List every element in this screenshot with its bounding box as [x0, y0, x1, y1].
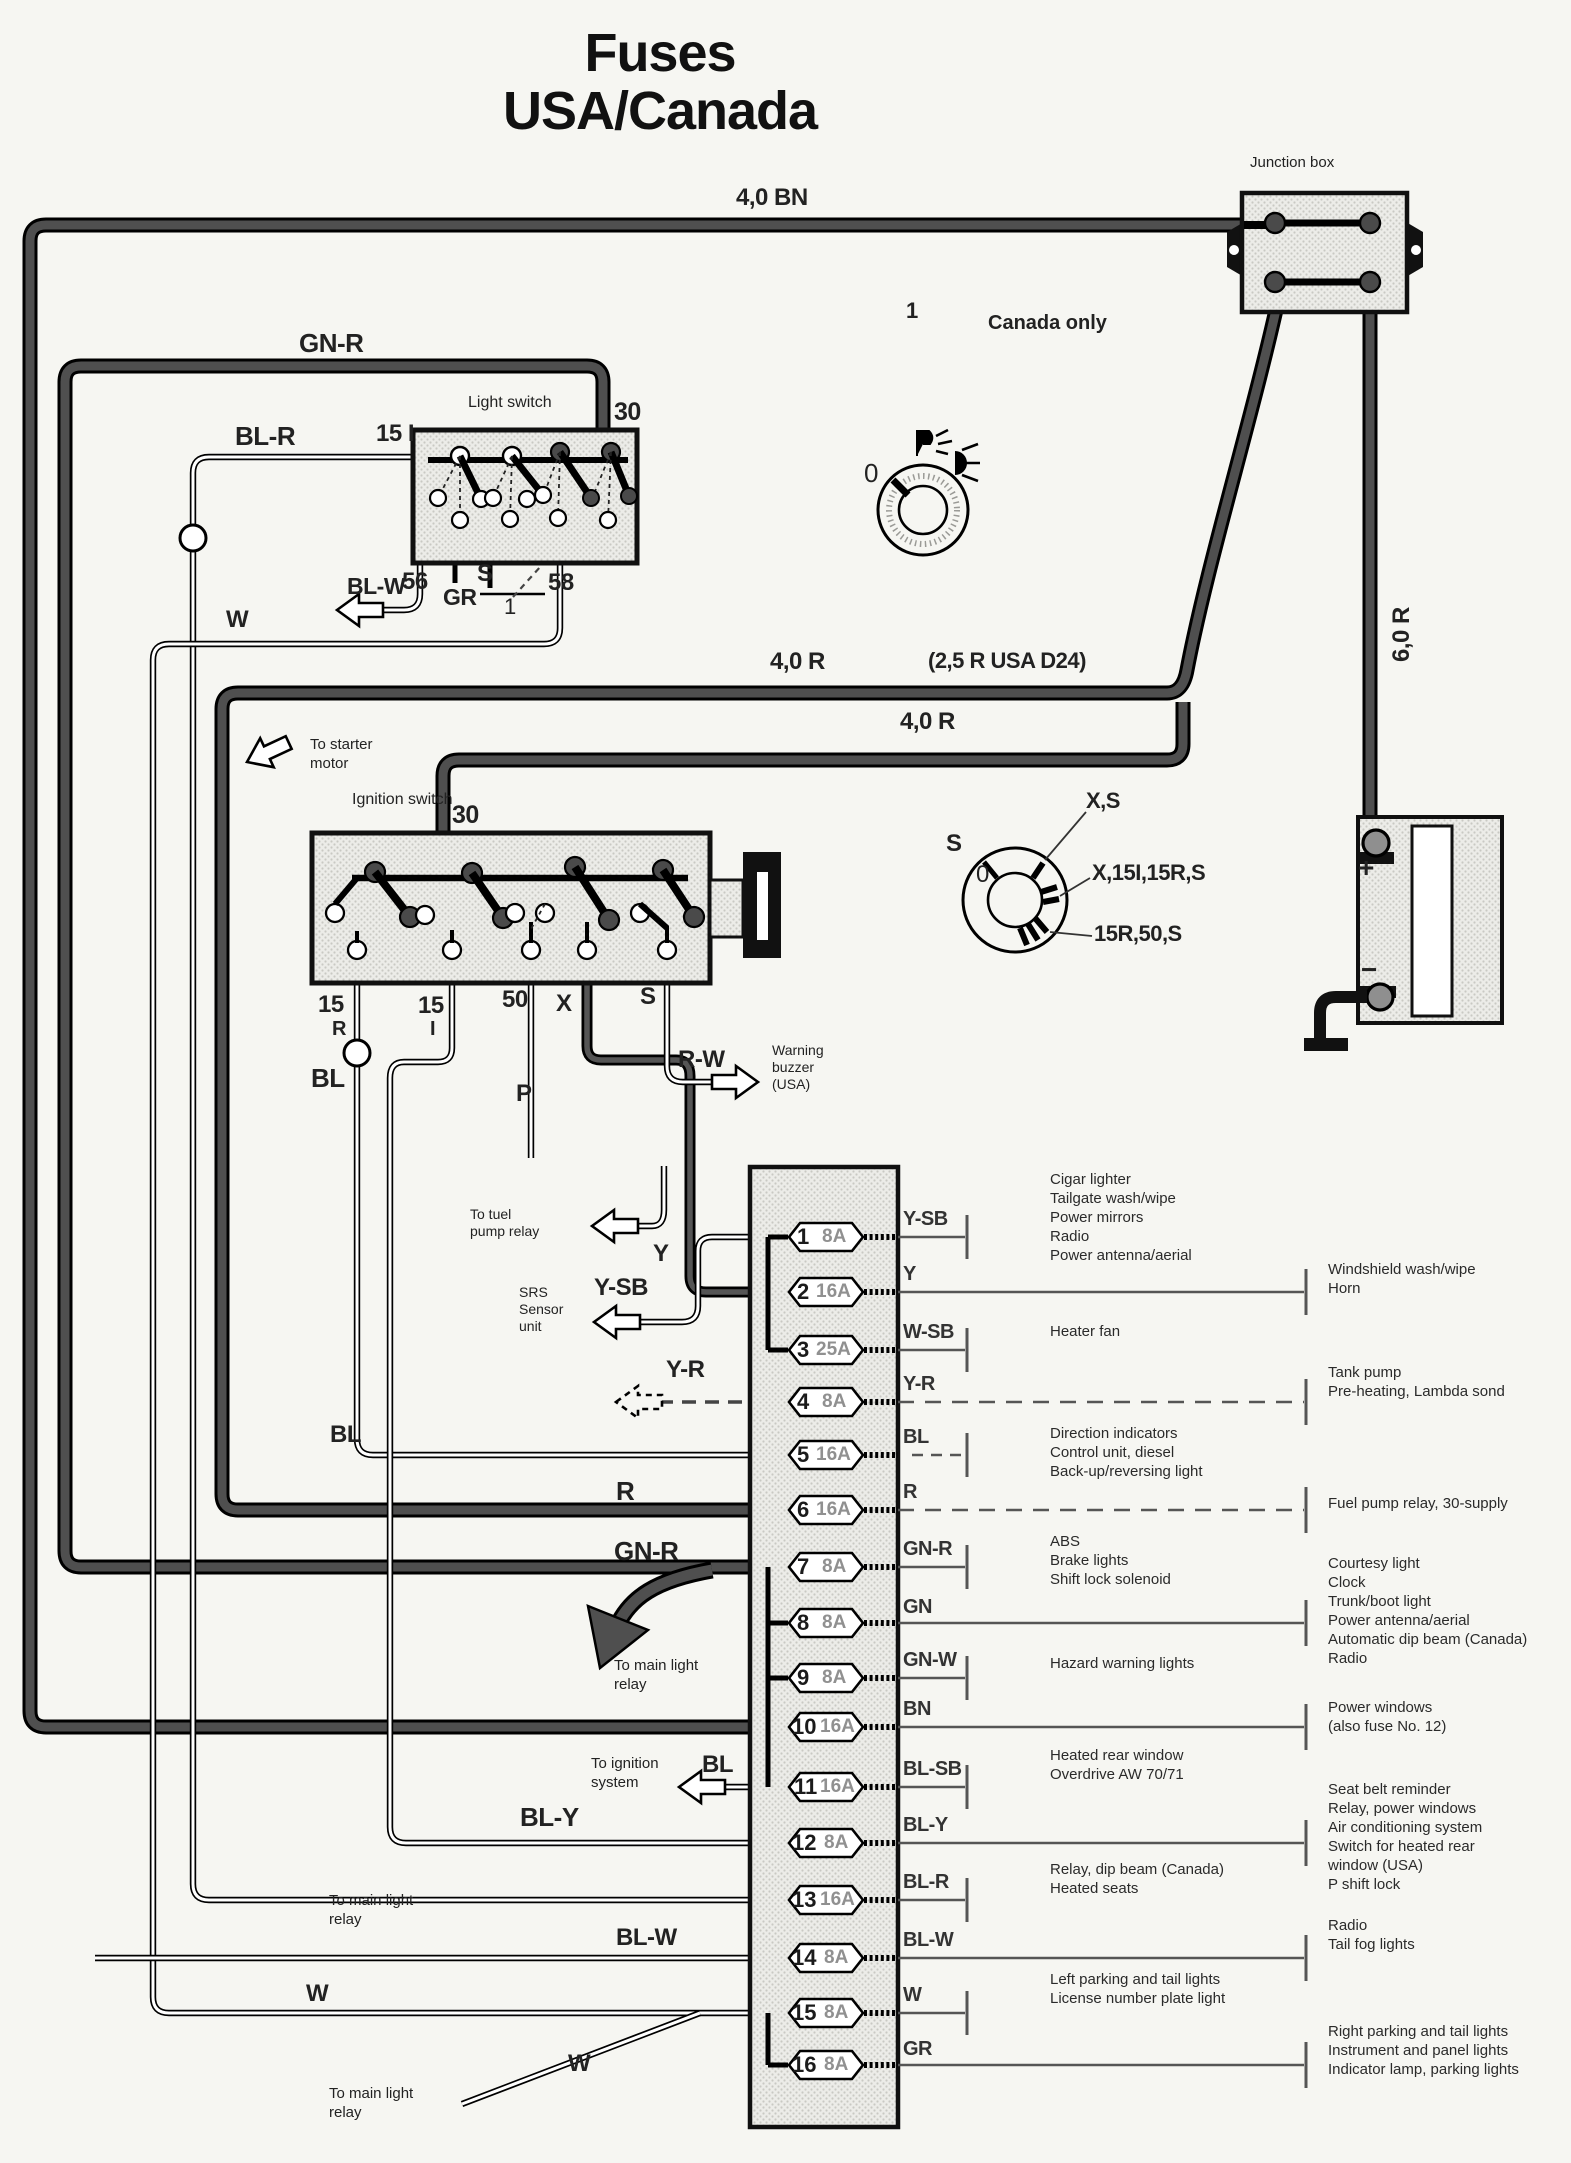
- fuse-16-code: GR: [903, 2038, 932, 2061]
- label-term-s: S: [477, 560, 493, 588]
- label-srs-sensor: SRS Sensor unit: [519, 1284, 563, 1335]
- label-bl-f5: BL: [330, 1421, 361, 1449]
- fuse-7-amp: 8A: [822, 1556, 846, 1578]
- fuse-15-number: 15: [792, 2000, 816, 2026]
- label-to-main-relay-1: To main light relay: [614, 1656, 698, 1694]
- fuse-6-number: 6: [797, 1497, 809, 1523]
- label-to-main-relay-2: To main light relay: [329, 1891, 413, 1929]
- fuse-7-number: 7: [797, 1554, 809, 1580]
- fuse-8-amp: 8A: [822, 1612, 846, 1634]
- fuse-15-code: W: [903, 1984, 921, 2007]
- flow-arrows: [240, 594, 758, 1803]
- label-key-0: 0: [976, 861, 989, 889]
- label-6-0-r: 6,0 R: [1388, 607, 1416, 662]
- fuse-15-consumers: Left parking and tail lights License num…: [1050, 1970, 1320, 2008]
- fuse-5-code: BL: [903, 1426, 929, 1449]
- label-y-sb-left: Y-SB: [594, 1274, 648, 1302]
- fuse-4-number: 4: [797, 1389, 809, 1415]
- label-bl-f11: BL: [702, 1751, 733, 1779]
- fuse-3-consumers: Heater fan: [1050, 1322, 1320, 1341]
- label-battery-plus: +: [1358, 852, 1374, 884]
- fuse-3-number: 3: [797, 1337, 809, 1363]
- fuse-16-number: 16: [792, 2052, 816, 2078]
- label-r-f6: R: [616, 1476, 634, 1507]
- fuse-10-code: BN: [903, 1698, 931, 1721]
- label-ls-30: 30: [614, 398, 641, 427]
- label-term-x: X: [556, 990, 572, 1018]
- label-term-gr: GR: [443, 584, 477, 611]
- fuse-8-code: GN: [903, 1596, 932, 1619]
- fuse-1-code: Y-SB: [903, 1208, 948, 1231]
- to-starter-arrow-icon: [240, 728, 295, 776]
- fuse-1-number: 1: [797, 1224, 809, 1250]
- fuse-13-consumers: Relay, dip beam (Canada) Heated seats: [1050, 1860, 1320, 1898]
- fuse-11-code: BL-SB: [903, 1758, 962, 1781]
- fuse-9-number: 9: [797, 1665, 809, 1691]
- fuse-5-number: 5: [797, 1442, 809, 1468]
- label-w-diag: W: [568, 2050, 590, 2078]
- label-to-ignition-system: To ignition system: [591, 1754, 659, 1792]
- label-15i: 15 I: [376, 420, 414, 448]
- label-y-left: Y: [653, 1240, 669, 1268]
- fuse-10-consumers: Power windows (also fuse No. 12): [1328, 1698, 1568, 1736]
- main-light-relay-arrow-icon: [588, 1570, 712, 1668]
- label-y-r-left: Y-R: [666, 1356, 705, 1384]
- label-4-0-r-b: 4,0 R: [900, 708, 955, 736]
- fuse-6-amp: 16A: [816, 1499, 851, 1521]
- label-4-0-r-a: 4,0 R: [770, 648, 825, 676]
- label-term-56: 56: [402, 568, 428, 596]
- label-term-1: 1: [504, 594, 516, 620]
- title-line2: USA/Canada: [330, 82, 990, 140]
- fuse-3-amp: 25A: [816, 1339, 851, 1361]
- fuse-1-amp: 8A: [822, 1226, 846, 1248]
- label-bl-r: BL-R: [235, 421, 295, 452]
- label-canada-only: Canada only: [988, 312, 1107, 335]
- wiring-diagram-page: { "title": {"line1": "Fuses", "line2": "…: [0, 0, 1571, 2163]
- label-p: P: [516, 1080, 532, 1108]
- fuse-5-amp: 16A: [816, 1444, 851, 1466]
- fuse-2-amp: 16A: [816, 1281, 851, 1303]
- fuse-3-code: W-SB: [903, 1321, 954, 1344]
- fuse-box: [750, 1167, 898, 2127]
- fuse-11-number: 11: [794, 1774, 817, 1800]
- label-4-0-bn: 4,0 BN: [736, 184, 808, 212]
- fuse-7-code: GN-R: [903, 1538, 952, 1561]
- light-switch: [413, 430, 637, 563]
- label-2-5-r-usa: (2,5 R USA D24): [928, 648, 1086, 674]
- fuse-2-number: 2: [797, 1279, 809, 1305]
- label-term-15b: 15: [418, 992, 444, 1020]
- fuse-13-number: 13: [792, 1887, 816, 1913]
- junction-box: [1227, 193, 1423, 312]
- label-gn-r-top: GN-R: [299, 328, 363, 359]
- label-key-1550: 15R,50,S: [1094, 921, 1182, 947]
- label-term-ib: I: [430, 1018, 435, 1041]
- label-canada-num: 1: [906, 298, 918, 324]
- label-gn-r-f7: GN-R: [614, 1536, 678, 1567]
- light-switch-knob-icon: [878, 430, 980, 555]
- fuse-10-amp: 16A: [820, 1716, 855, 1738]
- fuse-16-consumers: Right parking and tail lights Instrument…: [1328, 2022, 1568, 2079]
- fuse-8-number: 8: [797, 1610, 809, 1636]
- label-junction-box: Junction box: [1250, 154, 1334, 171]
- label-w-1: W: [226, 606, 248, 634]
- thin-wires: [95, 457, 788, 2104]
- label-r-w: R-W: [678, 1046, 724, 1074]
- page-title: Fuses USA/Canada: [330, 24, 990, 140]
- label-term-58: 58: [548, 569, 574, 597]
- fuse-9-code: GN-W: [903, 1649, 957, 1672]
- fuse-12-code: BL-Y: [903, 1814, 948, 1837]
- fuse-14-amp: 8A: [824, 1947, 848, 1969]
- ignition-switch: [312, 833, 781, 983]
- fuse-14-consumers: Radio Tail fog lights: [1328, 1916, 1568, 1954]
- label-key-s: S: [946, 830, 962, 858]
- label-term-15a: 15: [318, 991, 344, 1019]
- fuse-10-number: 10: [792, 1714, 816, 1740]
- label-light-switch: Light switch: [468, 394, 552, 412]
- srs-arrow-icon: [594, 1306, 640, 1338]
- label-ign-30: 30: [452, 801, 479, 830]
- battery: [1304, 817, 1502, 1051]
- fuse-16-amp: 8A: [824, 2054, 848, 2076]
- fuse-12-amp: 8A: [824, 1832, 848, 1854]
- label-w-f15: W: [306, 1980, 328, 2008]
- label-bl-w-1: BL-W: [347, 573, 405, 600]
- fuse-4-code: Y-R: [903, 1373, 935, 1396]
- label-term-50: 50: [502, 986, 528, 1014]
- consumer-lines: [898, 1215, 1306, 2088]
- fuse-7-consumers: ABS Brake lights Shift lock solenoid: [1050, 1532, 1320, 1589]
- label-key-xs: X,S: [1086, 788, 1120, 814]
- fuse-14-number: 14: [792, 1945, 816, 1971]
- label-bl-ign: BL: [311, 1063, 345, 1094]
- fuse-8-consumers: Courtesy light Clock Trunk/boot light Po…: [1328, 1554, 1568, 1668]
- fuse-12-number: 12: [792, 1830, 816, 1856]
- fuse-15-amp: 8A: [824, 2002, 848, 2024]
- label-bl-y: BL-Y: [520, 1802, 579, 1833]
- fuse-5-consumers: Direction indicators Control unit, diese…: [1050, 1424, 1320, 1481]
- fuse-11-consumers: Heated rear window Overdrive AW 70/71: [1050, 1746, 1320, 1784]
- title-line1: Fuses: [330, 24, 990, 82]
- fuel-pump-arrow-icon: [592, 1210, 638, 1242]
- label-to-fuel-pump: To tuel pump relay: [470, 1206, 539, 1240]
- fuse-9-amp: 8A: [822, 1667, 846, 1689]
- label-key-x15: X,15I,15R,S: [1092, 860, 1205, 886]
- fuse-13-code: BL-R: [903, 1871, 949, 1894]
- fuse-12-consumers: Seat belt reminder Relay, power windows …: [1328, 1780, 1568, 1894]
- fuse-6-code: R: [903, 1481, 917, 1504]
- fuse-4-amp: 8A: [822, 1391, 846, 1413]
- label-to-starter: To starter motor: [310, 735, 373, 773]
- label-battery-minus: −: [1361, 954, 1377, 986]
- fuse-4-consumers: Tank pump Pre-heating, Lambda sond: [1328, 1363, 1568, 1401]
- label-ignition-switch: Ignition switch: [352, 791, 453, 809]
- fuse-14-code: BL-W: [903, 1929, 953, 1952]
- fuse-9-consumers: Hazard warning lights: [1050, 1654, 1320, 1673]
- label-term-s-ign: S: [640, 983, 656, 1011]
- label-bl-w-f14: BL-W: [616, 1924, 677, 1952]
- fuse-11-amp: 16A: [820, 1776, 855, 1798]
- fuse-1-consumers: Cigar lighter Tailgate wash/wipe Power m…: [1050, 1170, 1320, 1265]
- fuse-6-consumers: Fuel pump relay, 30-supply: [1328, 1494, 1568, 1513]
- fuse-2-code: Y: [903, 1263, 916, 1286]
- fuse-2-consumers: Windshield wash/wipe Horn: [1328, 1260, 1568, 1298]
- label-to-main-relay-3: To main light relay: [329, 2084, 413, 2122]
- label-knob-0: 0: [864, 458, 878, 489]
- label-warning-buzzer: Warning buzzer (USA): [772, 1042, 824, 1093]
- fuse-13-amp: 16A: [820, 1889, 855, 1911]
- label-term-ra: R: [332, 1018, 346, 1041]
- y-r-arrow-icon: [616, 1386, 662, 1418]
